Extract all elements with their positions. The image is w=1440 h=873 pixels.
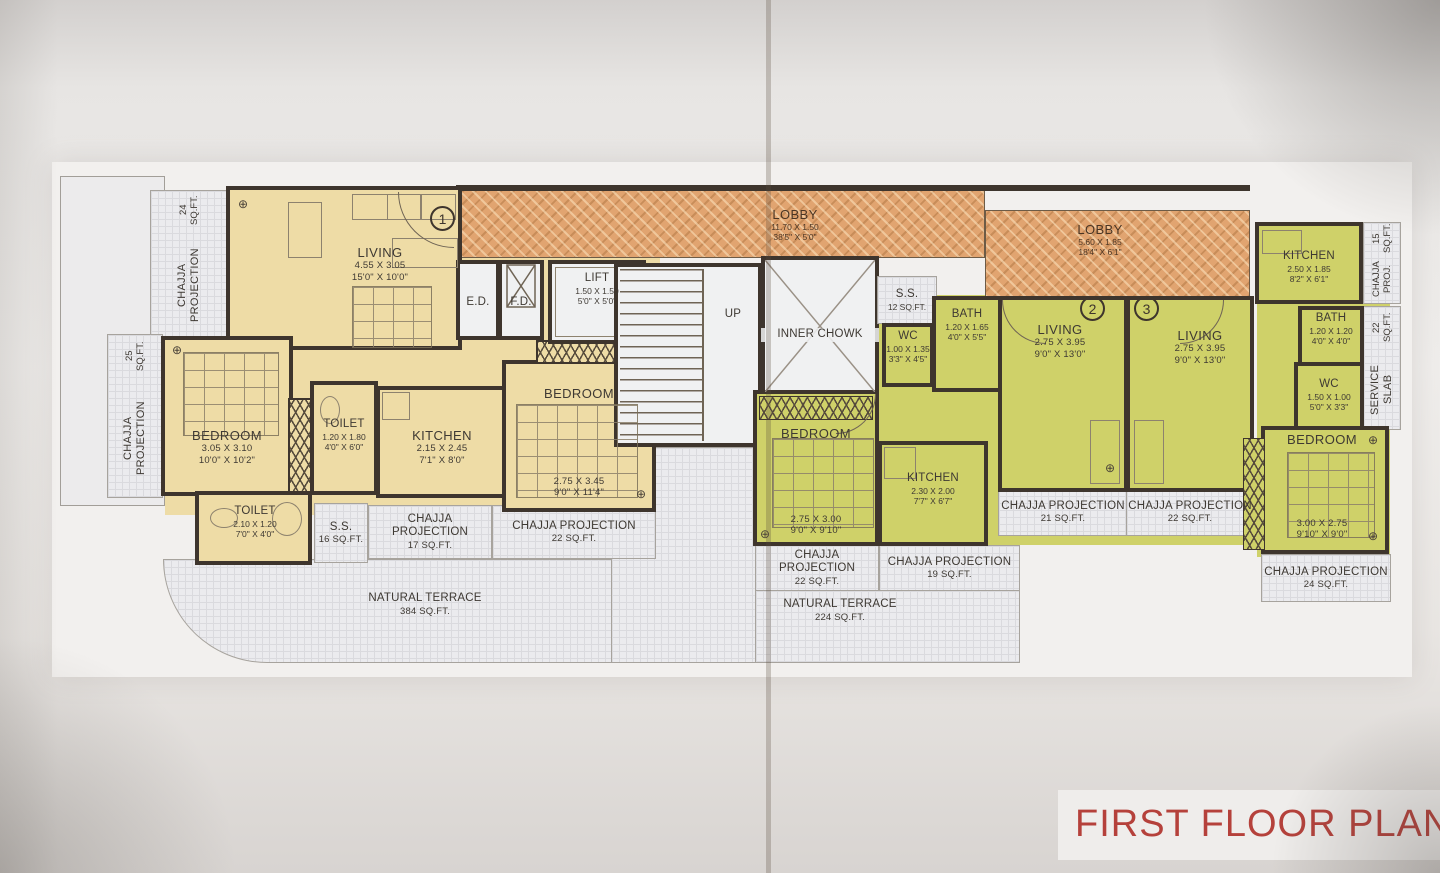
living2-label: LIVING 2.75 X 3.95 9'0" X 13'0": [1000, 322, 1120, 360]
dining-table-icon: [352, 286, 432, 348]
kitchen1-label: KITCHEN 2.15 X 2.45 7'1" X 8'0": [382, 428, 502, 466]
lobby1-label: LOBBY 11.70 X 1.50 38'5" X 5'0": [725, 207, 865, 242]
bath3-label: BATH 1.20 X 1.20 4'0" X 4'0": [1296, 312, 1366, 346]
flat-number-3: 3: [1134, 296, 1159, 321]
toilet1-label: TOILET 1.20 X 1.80 4'0" X 6'0": [300, 418, 388, 452]
living3-label: LIVING 2.75 X 3.95 9'0" X 13'0": [1144, 328, 1256, 366]
bedroom1-label: BEDROOM 3.05 X 3.10 10'0" X 10'2": [166, 428, 288, 466]
lift-label: LIFT 1.50 X 1.50 5'0" X 5'0": [552, 272, 642, 306]
service-slab: SERVICE SLAB 22 SQ.FT.: [1363, 306, 1401, 430]
wc3-label: WC 1.50 X 1.00 5'0" X 3'3": [1294, 378, 1364, 412]
bedroom3-dims: 2.75 X 3.00 9'0" X 9'10": [757, 514, 875, 536]
flat-number-2: 2: [1080, 296, 1105, 321]
column-marker-icon: ⊕: [238, 198, 248, 210]
page-title: FIRST FLOOR PLAN: [1075, 803, 1440, 846]
lobby2-label: LOBBY 5.60 X 1.85 18'4" X 6'1": [1035, 222, 1165, 257]
bedroom2-name: BEDROOM: [506, 386, 652, 401]
column-marker-icon: ⊕: [760, 528, 770, 540]
chajja-tl-area: 24 SQ.FT.: [178, 191, 200, 229]
chajja-projection-left: CHAJJA PROJECTION 25 SQ.FT.: [107, 334, 163, 498]
inner-chowk-label: INNER CHOWK: [761, 328, 879, 342]
chajja-left-label: CHAJJA PROJECTION: [122, 379, 148, 497]
terrace-224-label: NATURAL TERRACE 224 SQ.FT.: [755, 598, 925, 623]
chajja-17: CHAJJA PROJECTION 17 SQ.FT.: [368, 505, 492, 559]
flat-number-1: 1: [430, 206, 455, 231]
chajja-24b: CHAJJA PROJECTION 24 SQ.FT.: [1261, 554, 1391, 602]
bedroom4-dims: 3.00 X 2.75 9'10" X 9'0": [1267, 518, 1377, 540]
column-marker-icon: ⊕: [1105, 462, 1115, 474]
floor-plan-photo: CHAJJA PROJECTION 24 SQ.FT. CHAJJA PROJE…: [0, 0, 1440, 873]
toilet2-label: TOILET 2.10 X 1.20 7'0" X 4'0": [200, 505, 310, 539]
column-marker-icon: ⊕: [1368, 530, 1378, 542]
kitchen3-label: KITCHEN 2.50 X 1.85 8'2" X 6'1": [1262, 250, 1356, 284]
wardrobe-hatch-4: [1243, 438, 1265, 550]
armchair-icon: [288, 202, 322, 258]
chajja-projection-top-left: CHAJJA PROJECTION 24 SQ.FT.: [150, 190, 228, 340]
building-top-wall: [456, 185, 1250, 191]
living1-label: LIVING 4.55 X 3.05 15'0" X 10'0": [318, 245, 442, 283]
chajja-22a: CHAJJA PROJECTION 22 SQ.FT.: [492, 505, 656, 559]
inner-chowk-x-icon: [765, 260, 875, 392]
chajja-left-area: 25 SQ.FT.: [124, 335, 146, 377]
terrace-384-label: NATURAL TERRACE 384 SQ.FT.: [330, 592, 520, 617]
kitchen-sink-icon-1: [382, 392, 410, 420]
chajja-22c: CHAJJA PROJECTION 22 SQ.FT.: [755, 545, 879, 591]
ss-12: S.S. 12 SQ.FT.: [877, 276, 937, 324]
ed-label: E.D.: [456, 296, 500, 310]
bedroom4-name: BEDROOM: [1267, 432, 1377, 447]
wc-mid-label: WC 1.00 X 1.35 3'3" X 4'5": [880, 330, 936, 364]
chajja-22b: CHAJJA PROJECTION 22 SQ.FT.: [1126, 488, 1254, 536]
fd-label: F.D.: [498, 296, 544, 310]
ss-16: S.S. 16 SQ.FT.: [314, 503, 368, 563]
bedroom2-dims: 2.75 X 3.45 9'0" X 11'4": [506, 476, 652, 498]
column-marker-icon: ⊕: [172, 344, 182, 356]
up-label: UP: [708, 308, 758, 322]
sofa-icon-living3: [1134, 420, 1164, 484]
bedroom3-name: BEDROOM: [757, 426, 875, 441]
column-marker-icon: ⊕: [1368, 434, 1378, 446]
lobby-strip-1: [460, 190, 985, 258]
bed-icon-bedroom1: [183, 352, 279, 436]
kitchen2-label: KITCHEN 2.30 X 2.00 7'7" X 6'7": [882, 472, 984, 506]
bath-mid-label: BATH 1.20 X 1.65 4'0" X 5'5": [930, 308, 1004, 342]
chajja-21: CHAJJA PROJECTION 21 SQ.FT.: [998, 488, 1128, 536]
chajja-proj-15: CHAJJA PROJ. 15 SQ.FT.: [1363, 222, 1401, 304]
chajja-19: CHAJJA PROJECTION 19 SQ.FT.: [879, 545, 1020, 591]
column-marker-icon: ⊕: [636, 488, 646, 500]
stair-rail: [702, 269, 704, 441]
chajja-tl-label: CHAJJA PROJECTION: [176, 231, 202, 339]
